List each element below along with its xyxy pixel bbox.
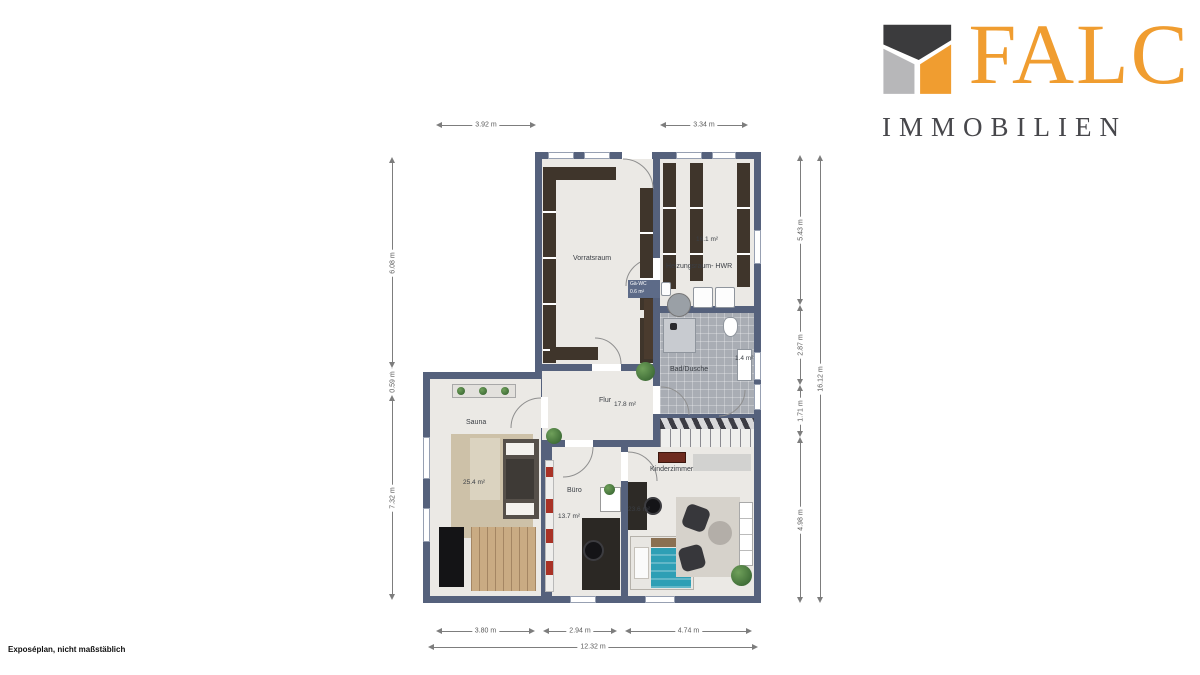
boiler	[667, 293, 691, 317]
storage-shelf	[543, 167, 556, 363]
logo-brand: FALC	[969, 14, 1190, 94]
dim-left-2: 0.59 m	[388, 368, 397, 395]
logo: FALC IMMOBILIEN	[882, 14, 1190, 143]
rug	[676, 497, 740, 577]
dim-bottom-3: 4.74 m	[625, 627, 752, 636]
sofa-pillow	[506, 443, 534, 455]
dim-right-3: 1.71 m	[796, 385, 805, 437]
bed-pillow	[634, 547, 649, 579]
dim-bottom-1: 3.80 m	[436, 627, 535, 636]
beanbag	[677, 543, 706, 572]
plant	[731, 565, 752, 586]
sofa-seat	[506, 459, 534, 499]
area-buero: 13.7 m²	[558, 513, 580, 520]
washing-machine	[693, 287, 713, 308]
label-sauna: Sauna	[466, 419, 486, 426]
storage-shelf	[663, 163, 676, 289]
label-vorratsraum: Vorratsraum	[573, 255, 611, 262]
shelf-item	[546, 529, 553, 543]
dim-right-total: 16.12 m	[816, 155, 825, 603]
storage-shelf	[737, 163, 750, 287]
label-flur: Flur	[599, 397, 611, 404]
logo-subtitle: IMMOBILIEN	[882, 112, 1190, 143]
sauna-cabin	[471, 527, 536, 591]
toilet	[723, 317, 738, 337]
plant	[501, 387, 509, 395]
dim-bottom-total: 12.32 m	[428, 643, 758, 652]
disclaimer-note: Exposéplan, nicht maßstäblich	[8, 645, 125, 654]
wall-shelf	[545, 460, 554, 592]
label-buero: Büro	[567, 487, 582, 494]
dryer	[715, 287, 735, 308]
rug-inner	[470, 438, 500, 500]
label-bad: Bad/Dusche	[670, 366, 708, 373]
dim-bottom-2: 2.94 m	[543, 627, 617, 636]
area-flur: 17.8 m²	[614, 401, 636, 408]
sofa	[503, 439, 539, 519]
bath-cabinet	[737, 349, 752, 381]
storage-shelf	[550, 347, 598, 360]
plant	[479, 387, 487, 395]
dim-top-1: 3.92 m	[436, 121, 536, 130]
shower	[663, 318, 696, 353]
shower-drain	[670, 323, 677, 330]
shelf-item	[546, 561, 553, 575]
dim-right-4: 4.98 m	[796, 437, 805, 603]
pouf	[708, 521, 732, 545]
area-bad: 1.4 m²	[735, 355, 753, 362]
storage-shelf	[556, 167, 616, 180]
plant	[604, 484, 615, 495]
area-sauna: 25.4 m²	[463, 479, 485, 486]
bookshelf	[739, 502, 753, 566]
wall-tag: Gä-WC 0.6 m²	[628, 280, 660, 298]
closet	[644, 299, 653, 359]
piano	[439, 527, 464, 587]
shelf-item	[546, 467, 553, 477]
area-heizungsraum: 16.1 m²	[696, 236, 718, 243]
wall-shelf	[658, 452, 686, 463]
sideboard	[452, 384, 516, 398]
label-kinderzimmer: Kinderzimmer	[650, 466, 693, 473]
wall-tag-name: Gä-WC	[630, 281, 658, 289]
label-heizungsraum: Heizungsraum- HWR	[666, 263, 732, 270]
plant	[636, 362, 655, 381]
logo-house-icon	[882, 14, 953, 106]
plant	[546, 428, 562, 444]
area-kinderzimmer: 23.6 m²	[628, 506, 650, 513]
utility-sink	[661, 282, 671, 296]
dim-top-2: 3.34 m	[660, 121, 748, 130]
dim-left-3: 7.32 m	[388, 395, 397, 600]
wall-tag-area: 0.6 m²	[630, 289, 658, 297]
dim-right-1: 5.43 m	[796, 155, 805, 305]
floor-mat	[693, 454, 751, 471]
dim-right-2: 2.87 m	[796, 305, 805, 385]
sofa-pillow	[506, 503, 534, 515]
dim-left-1: 6.08 m	[388, 157, 397, 368]
plant	[457, 387, 465, 395]
shelf-item	[546, 499, 553, 513]
beanbag	[681, 503, 712, 534]
office-chair	[583, 540, 604, 561]
